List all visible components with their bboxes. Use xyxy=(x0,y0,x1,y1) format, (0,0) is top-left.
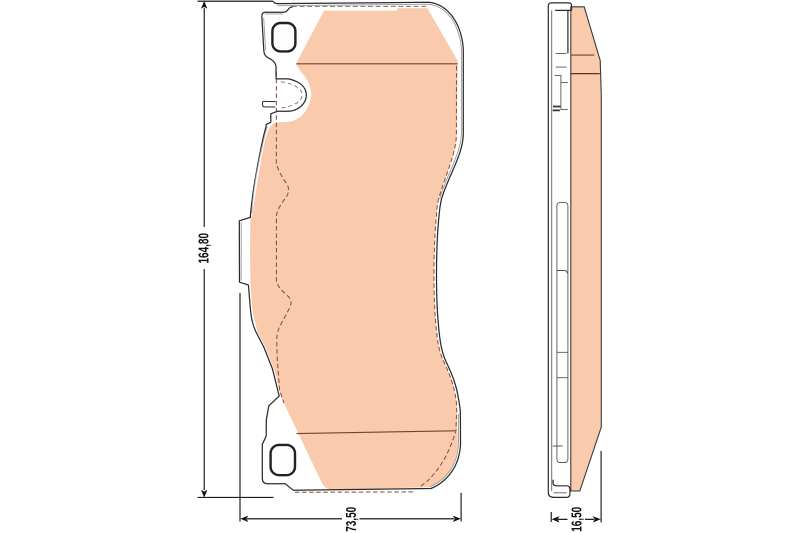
svg-text:73,50: 73,50 xyxy=(344,507,360,532)
svg-text:16,50: 16,50 xyxy=(569,507,585,532)
svg-text:164,80: 164,80 xyxy=(196,233,212,264)
